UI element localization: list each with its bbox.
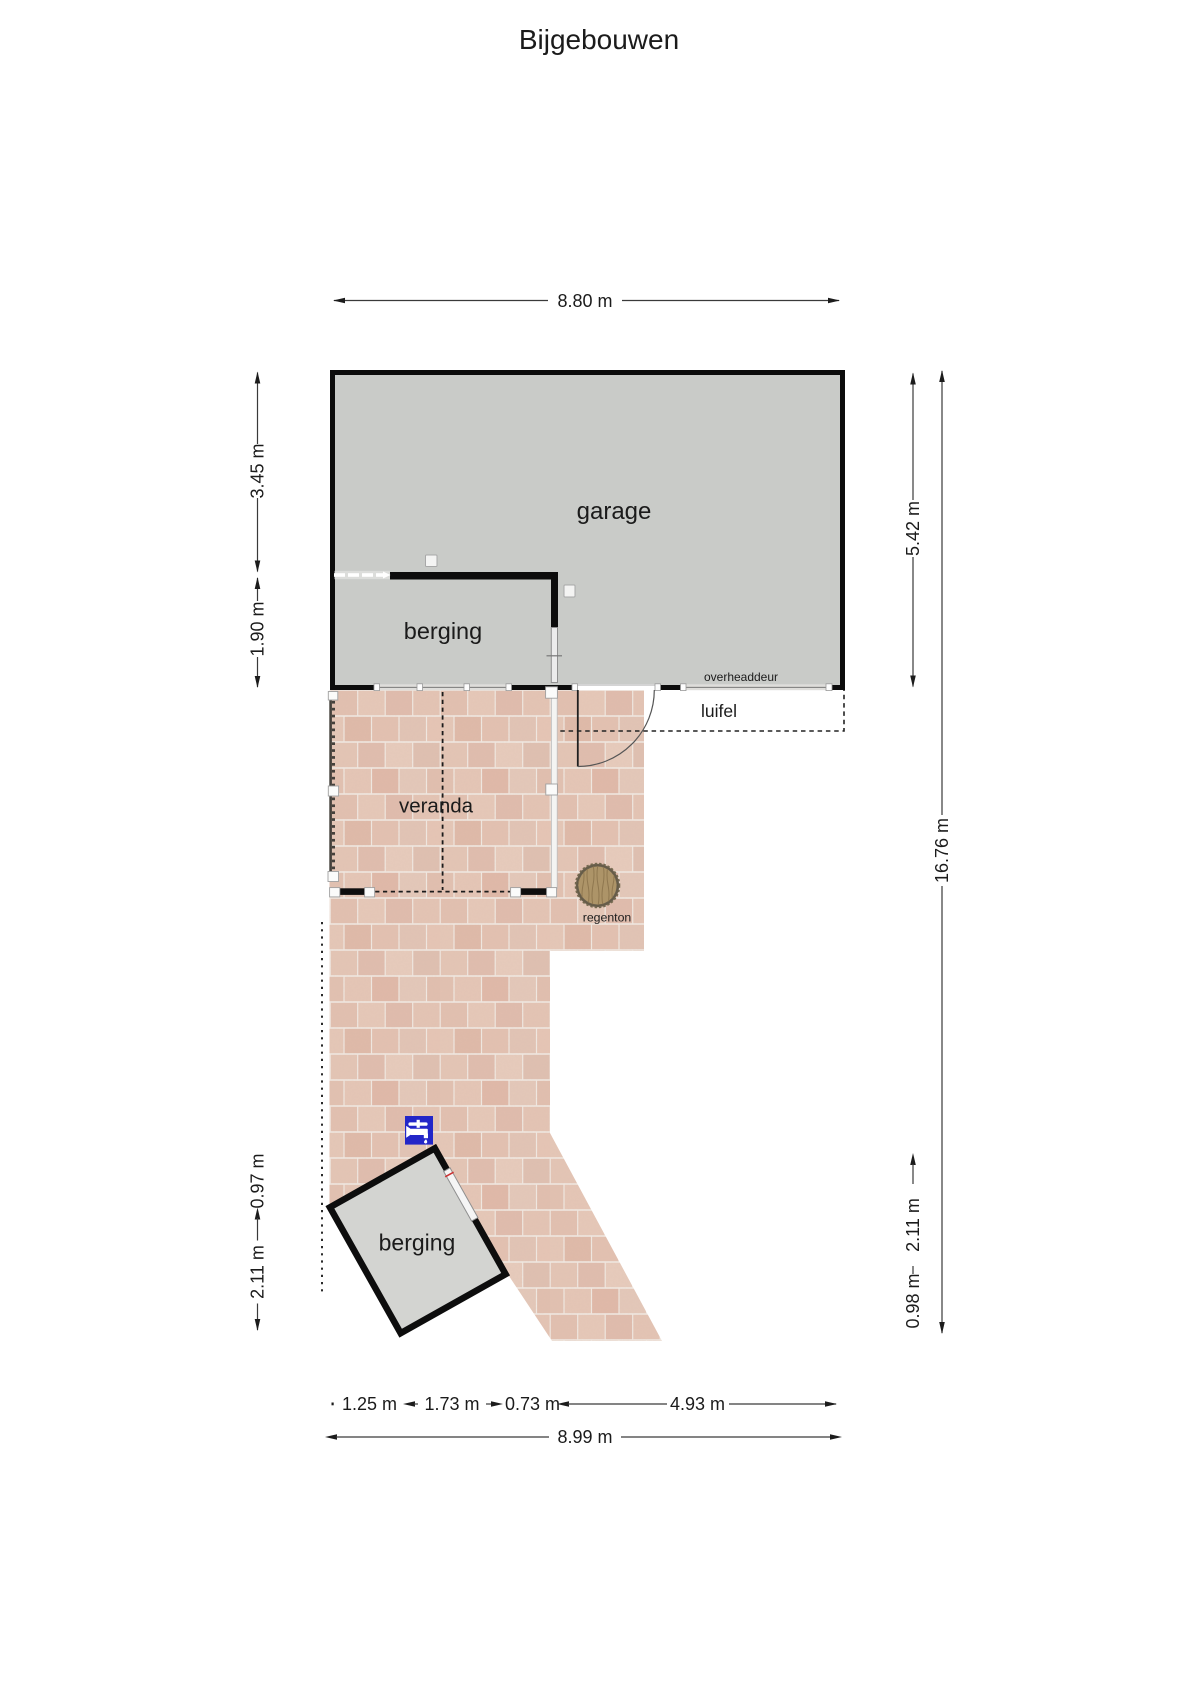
svg-text:Bijgebouwen: Bijgebouwen [519,24,679,55]
svg-text:1.25 m: 1.25 m [342,1394,397,1414]
svg-text:0.73 m: 0.73 m [505,1394,560,1414]
svg-text:0.97 m: 0.97 m [248,1153,268,1208]
svg-text:berging: berging [379,1230,456,1256]
svg-text:3.45 m: 3.45 m [248,443,268,498]
svg-text:regenton: regenton [583,911,632,925]
svg-text:5.42 m: 5.42 m [903,501,923,556]
svg-text:1.73 m: 1.73 m [424,1394,479,1414]
svg-text:1.90 m: 1.90 m [248,601,268,656]
svg-text:16.76 m: 16.76 m [932,818,952,883]
svg-text:berging: berging [404,618,482,644]
svg-text:8.80 m: 8.80 m [557,291,612,311]
svg-text:garage: garage [577,498,652,525]
svg-text:4.93 m: 4.93 m [670,1394,725,1414]
svg-text:veranda: veranda [399,795,474,818]
svg-text:2.11 m: 2.11 m [248,1245,268,1299]
svg-text:2.11 m: 2.11 m [903,1198,923,1252]
svg-text:8.99 m: 8.99 m [557,1427,612,1447]
svg-text:luifel: luifel [701,701,737,721]
svg-text:overheaddeur: overheaddeur [704,670,778,684]
svg-text:0.98 m: 0.98 m [903,1273,923,1328]
